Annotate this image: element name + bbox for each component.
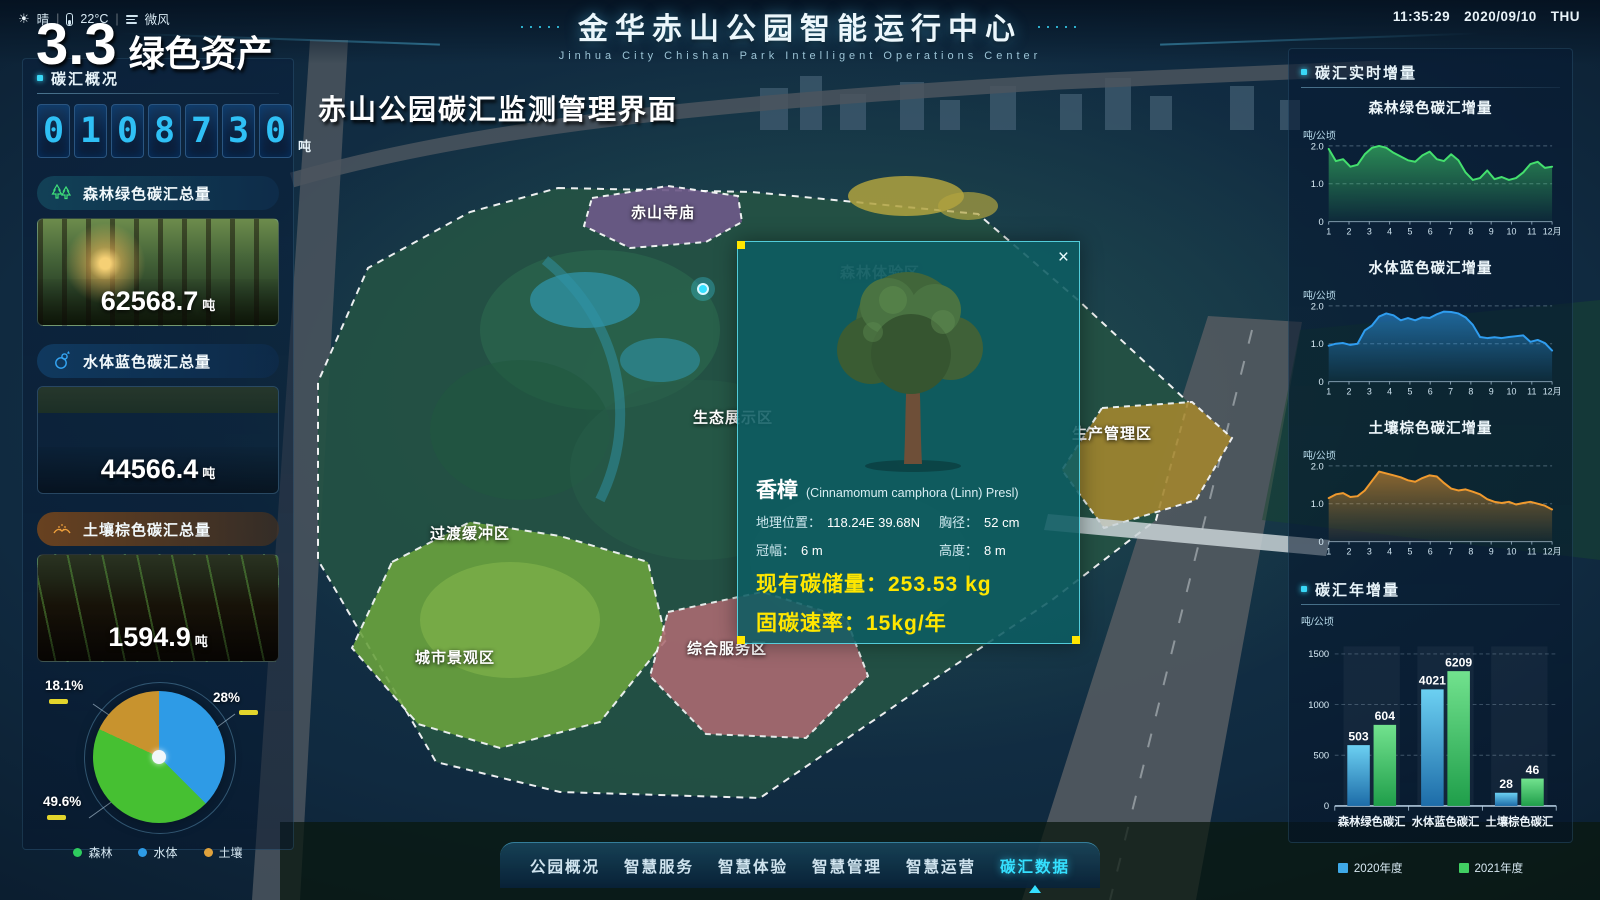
realtime-title: 碳汇实时增量: [1315, 62, 1417, 83]
svg-text:11: 11: [1527, 386, 1536, 396]
annual-legend: 2020年度2021年度: [1301, 860, 1560, 876]
tree-latin-name: (Cinnamomum camphora (Linn) Presl): [806, 486, 1019, 500]
svg-text:2: 2: [1347, 386, 1352, 396]
page-title: 赤山公园碳汇监测管理界面: [318, 88, 678, 128]
pie-center-dot: [152, 750, 166, 764]
svg-text:1000: 1000: [1308, 700, 1329, 710]
legend-swatch-icon: [204, 848, 213, 857]
svg-text:3: 3: [1367, 386, 1372, 396]
corner-handle: [737, 241, 745, 249]
corner-handle: [1072, 636, 1080, 644]
chart-title: 水体蓝色碳汇增量: [1301, 257, 1560, 278]
svg-text:8: 8: [1468, 546, 1473, 556]
soil-card-header: 土壤棕色碳汇总量: [37, 512, 279, 546]
svg-text:6: 6: [1428, 386, 1433, 396]
pie-label-soil: 18.1%: [45, 678, 83, 693]
pie-dash-marker: [47, 815, 66, 820]
annual-bar-chart-svg: 050010001500503402128604620946森林绿色碳汇水体蓝色…: [1301, 628, 1560, 860]
svg-text:1: 1: [1326, 386, 1331, 396]
svg-text:3: 3: [1367, 226, 1372, 236]
forest-card-header: 森林绿色碳汇总量: [37, 176, 279, 210]
water-card-image: 44566.4吨: [37, 386, 279, 494]
svg-text:503: 503: [1348, 729, 1369, 743]
nav-item-smart-service[interactable]: 智慧服务: [624, 855, 694, 877]
sun-icon: ☀: [18, 11, 30, 27]
realtime-header: 碳汇实时增量: [1301, 59, 1560, 85]
svg-text:9: 9: [1489, 226, 1494, 236]
svg-text:7: 7: [1448, 386, 1453, 396]
svg-text:4: 4: [1387, 226, 1392, 236]
clock-date: 2020/09/10: [1464, 9, 1537, 24]
bullet-icon: [1301, 69, 1307, 75]
svg-text:2.0: 2.0: [1311, 140, 1324, 151]
chart-unit: 吨/公顷: [1303, 127, 1336, 142]
carbon-storage-line: 现有碳储量：253.53 kg: [756, 568, 1061, 598]
nav-item-smart-experience[interactable]: 智慧体验: [718, 855, 788, 877]
tree-icon: [51, 182, 73, 204]
tree-fields: 地理位置：118.24E 39.68N 胸径：52 cm 冠幅：6 m 高度：8…: [756, 512, 1061, 559]
title-dots-right: ·····: [1036, 16, 1081, 37]
svg-text:12月: 12月: [1543, 546, 1560, 556]
water-monthly-svg: 01.02.0123456789101112月: [1301, 282, 1560, 408]
map-label-production-management: 生产管理区: [1072, 423, 1152, 444]
forest-monthly-svg: 01.02.0123456789101112月: [1301, 122, 1560, 248]
svg-text:土壤棕色碳汇: 土壤棕色碳汇: [1486, 815, 1554, 829]
left-panel: 碳汇概况 0108730 吨 森林绿色碳汇总量 62568.7吨 水体蓝色碳汇总…: [22, 58, 294, 850]
legend-item: 2020年度: [1338, 860, 1403, 876]
counter-digit: 0: [37, 104, 70, 158]
legend-item: 水体: [138, 844, 177, 861]
soil-card-image: 1594.9吨: [37, 554, 279, 662]
page-main-title: 金华赤山公园智能运行中心: [578, 4, 1022, 48]
pie-label-water: 28%: [213, 690, 240, 705]
pie-dash-marker: [239, 710, 258, 715]
svg-text:9: 9: [1489, 386, 1494, 396]
svg-text:8: 8: [1468, 386, 1473, 396]
clock-time: 11:35:29: [1393, 9, 1450, 24]
svg-text:28: 28: [1499, 777, 1513, 791]
svg-text:7: 7: [1448, 226, 1453, 236]
pie-legend: 森林水体土壤: [37, 844, 279, 861]
svg-text:604: 604: [1375, 709, 1396, 723]
legend-item: 土壤: [204, 844, 243, 861]
field-dbh: 胸径：52 cm: [939, 512, 1061, 531]
right-panel: 碳汇实时增量 森林绿色碳汇增量 吨/公顷 01.02.0123456789101…: [1288, 48, 1573, 843]
legend-swatch-icon: [1338, 863, 1348, 873]
carbon-share-pie-chart: 18.1% 28% 49.6%: [37, 668, 279, 840]
forest-card-image: 62568.7吨: [37, 218, 279, 326]
svg-text:1: 1: [1326, 546, 1331, 556]
counter-digit: 7: [185, 104, 218, 158]
counter-digit: 3: [222, 104, 255, 158]
soil-monthly-chart: 土壤棕色碳汇增量 吨/公顷 01.02.0123456789101112月: [1301, 417, 1560, 568]
svg-text:4: 4: [1387, 546, 1392, 556]
forest-card-value: 62568.7吨: [38, 286, 278, 317]
water-card-value: 44566.4吨: [38, 454, 278, 485]
svg-text:4: 4: [1387, 386, 1392, 396]
legend-label: 森林: [88, 844, 112, 861]
counter-unit: 吨: [298, 136, 311, 158]
chart-unit: 吨/公顷: [1303, 447, 1336, 462]
map-label-transition-buffer: 过渡缓冲区: [430, 523, 510, 544]
marker-dot-icon: [697, 283, 709, 295]
legend-item: 2021年度: [1459, 860, 1524, 876]
water-icon: [51, 350, 73, 372]
divider: [37, 93, 279, 94]
section-title: 绿色资产: [129, 34, 273, 74]
svg-text:10: 10: [1507, 386, 1517, 396]
counter-digit: 0: [259, 104, 292, 158]
svg-text:6: 6: [1428, 226, 1433, 236]
clock-weekday: THU: [1551, 9, 1580, 24]
counter-digit: 0: [111, 104, 144, 158]
legend-label: 土壤: [219, 844, 243, 861]
svg-text:水体蓝色碳汇: 水体蓝色碳汇: [1412, 815, 1480, 829]
water-card-header: 水体蓝色碳汇总量: [37, 344, 279, 378]
header: ····· 金华赤山公园智能运行中心 ····· Jinhua City Chi…: [420, 4, 1180, 62]
svg-text:46: 46: [1526, 763, 1540, 777]
chart-unit: 吨/公顷: [1301, 613, 1560, 628]
svg-text:1500: 1500: [1308, 649, 1329, 659]
svg-text:9: 9: [1489, 546, 1494, 556]
island-strip: [38, 387, 278, 413]
svg-text:10: 10: [1507, 546, 1517, 556]
chart-unit: 吨/公顷: [1303, 287, 1336, 302]
svg-text:2: 2: [1347, 546, 1352, 556]
legend-swatch-icon: [73, 848, 82, 857]
chart-title: 土壤棕色碳汇增量: [1301, 417, 1560, 438]
svg-text:12月: 12月: [1543, 386, 1560, 396]
svg-text:10: 10: [1507, 226, 1517, 236]
legend-swatch-icon: [1459, 863, 1469, 873]
carbon-rate-line: 固碳速率：15kg/年: [756, 607, 1061, 637]
soil-monthly-svg: 01.02.0123456789101112月: [1301, 442, 1560, 568]
yellow-zone-2: [938, 192, 998, 220]
svg-text:500: 500: [1313, 751, 1329, 761]
corner-handle: [737, 636, 745, 644]
water-card-title: 水体蓝色碳汇总量: [83, 351, 211, 372]
page-subtitle: Jinhua City Chishan Park Intelligent Ope…: [420, 50, 1180, 62]
counter-digit: 1: [74, 104, 107, 158]
svg-text:8: 8: [1468, 226, 1473, 236]
svg-text:0: 0: [1324, 801, 1329, 811]
section-number: 3.3: [36, 16, 117, 74]
svg-text:0: 0: [1319, 216, 1324, 227]
nav-item-smart-operations[interactable]: 智慧运营: [906, 855, 976, 877]
tree-marker[interactable]: [691, 277, 715, 301]
tree-image: [793, 262, 1025, 472]
svg-text:7: 7: [1448, 546, 1453, 556]
annual-title: 碳汇年增量: [1315, 579, 1400, 600]
bullet-icon: [1301, 586, 1307, 592]
legend-label: 2021年度: [1475, 860, 1524, 876]
svg-text:5: 5: [1407, 226, 1412, 236]
svg-text:5: 5: [1407, 386, 1412, 396]
water-monthly-chart: 水体蓝色碳汇增量 吨/公顷 01.02.0123456789101112月: [1301, 257, 1560, 408]
chart-title: 森林绿色碳汇增量: [1301, 97, 1560, 118]
divider: [1301, 604, 1560, 605]
svg-text:1.0: 1.0: [1311, 338, 1324, 349]
svg-text:2.0: 2.0: [1311, 460, 1324, 471]
legend-label: 水体: [153, 844, 177, 861]
annual-header: 碳汇年增量: [1301, 576, 1560, 602]
svg-text:6: 6: [1428, 546, 1433, 556]
pie-dash-marker: [49, 699, 68, 704]
tree-info-popup: × 香樟 (Cinnamomum camphora (Linn) Presl) …: [737, 241, 1080, 644]
svg-text:1: 1: [1326, 226, 1331, 236]
svg-text:森林绿色碳汇: 森林绿色碳汇: [1338, 815, 1406, 829]
field-height: 高度：8 m: [939, 540, 1061, 559]
field-crown: 冠幅：6 m: [756, 540, 939, 559]
svg-text:4021: 4021: [1419, 674, 1446, 688]
tree-name: 香樟: [756, 474, 798, 504]
bottom-nav: 公园概况智慧服务智慧体验智慧管理智慧运营碳汇数据: [500, 842, 1100, 888]
legend-item: 森林: [73, 844, 112, 861]
nav-item-carbon-data[interactable]: 碳汇数据: [1000, 855, 1070, 877]
svg-text:11: 11: [1527, 226, 1536, 236]
soil-card-value: 1594.9吨: [38, 622, 278, 653]
svg-text:0: 0: [1319, 536, 1324, 547]
svg-text:2: 2: [1347, 226, 1352, 236]
soil-icon: [51, 518, 73, 540]
clock: 11:35:29 2020/09/10 THU: [1393, 9, 1580, 24]
svg-text:1.0: 1.0: [1311, 178, 1324, 189]
nav-item-park-overview[interactable]: 公园概况: [530, 855, 600, 877]
legend-label: 2020年度: [1354, 860, 1403, 876]
section-overlay: 3.3 绿色资产: [36, 16, 273, 74]
map-label-city-landscape: 城市景观区: [415, 647, 495, 668]
map-label-temple: 赤山寺庙: [631, 202, 695, 223]
carbon-total-counter: 0108730 吨: [37, 104, 279, 158]
svg-text:5: 5: [1407, 546, 1412, 556]
svg-text:11: 11: [1527, 546, 1536, 556]
divider: [1301, 87, 1560, 88]
svg-text:2.0: 2.0: [1311, 300, 1324, 311]
pie-label-forest: 49.6%: [43, 794, 81, 809]
soil-card-title: 土壤棕色碳汇总量: [83, 519, 211, 540]
close-icon[interactable]: ×: [1058, 248, 1069, 267]
svg-text:12月: 12月: [1543, 226, 1560, 236]
counter-digit: 8: [148, 104, 181, 158]
svg-text:3: 3: [1367, 546, 1372, 556]
svg-text:6209: 6209: [1445, 655, 1472, 669]
forest-card-title: 森林绿色碳汇总量: [83, 183, 211, 204]
forest-monthly-chart: 森林绿色碳汇增量 吨/公顷 01.02.0123456789101112月: [1301, 97, 1560, 248]
nav-item-smart-management[interactable]: 智慧管理: [812, 855, 882, 877]
tree-name-row: 香樟 (Cinnamomum camphora (Linn) Presl): [756, 474, 1061, 504]
field-location: 地理位置：118.24E 39.68N: [756, 512, 939, 531]
svg-text:1.0: 1.0: [1311, 498, 1324, 509]
svg-text:0: 0: [1319, 376, 1324, 387]
legend-swatch-icon: [138, 848, 147, 857]
title-dots-left: ·····: [519, 16, 564, 37]
